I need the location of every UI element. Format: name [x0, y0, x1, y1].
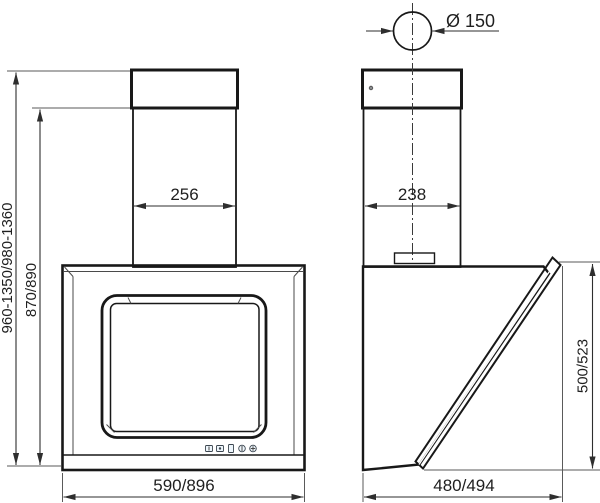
frame-tick-left — [128, 298, 131, 304]
touch-control-panel — [206, 445, 257, 453]
label-chimney-width: 256 — [170, 185, 198, 204]
light-button-mark — [219, 447, 221, 449]
front-glass-frame — [102, 296, 266, 438]
label-panel-height: 500/523 — [575, 339, 592, 393]
label-body-height: 870/890 — [23, 263, 40, 317]
label-duct-diameter: Ø 150 — [446, 11, 495, 31]
side-view — [363, 3, 561, 470]
front-chimney-upper — [132, 70, 238, 108]
display-icon — [229, 445, 234, 453]
frame-bevel-bottom-right — [254, 425, 262, 433]
dimension-annotations: 256 238 590/896 480/494 Ø 150 960-1350/9… — [0, 11, 600, 502]
label-chimney-depth: 238 — [398, 185, 426, 204]
front-view — [63, 70, 305, 470]
side-glass-highlight — [419, 263, 556, 465]
label-hood-width: 590/896 — [153, 476, 214, 495]
front-glass-panel — [111, 304, 260, 432]
frame-tick-right — [238, 298, 241, 304]
diagram-canvas: 256 238 590/896 480/494 Ø 150 960-1350/9… — [0, 0, 600, 503]
hood-dimension-diagram: 256 238 590/896 480/494 Ø 150 960-1350/9… — [0, 0, 600, 503]
side-hood-wedge — [363, 267, 549, 471]
label-hood-depth: 480/494 — [433, 476, 494, 495]
screw-dot — [369, 86, 373, 90]
mounting-bracket — [395, 253, 435, 264]
label-overall-height: 960-1350/980-1360 — [0, 203, 16, 334]
